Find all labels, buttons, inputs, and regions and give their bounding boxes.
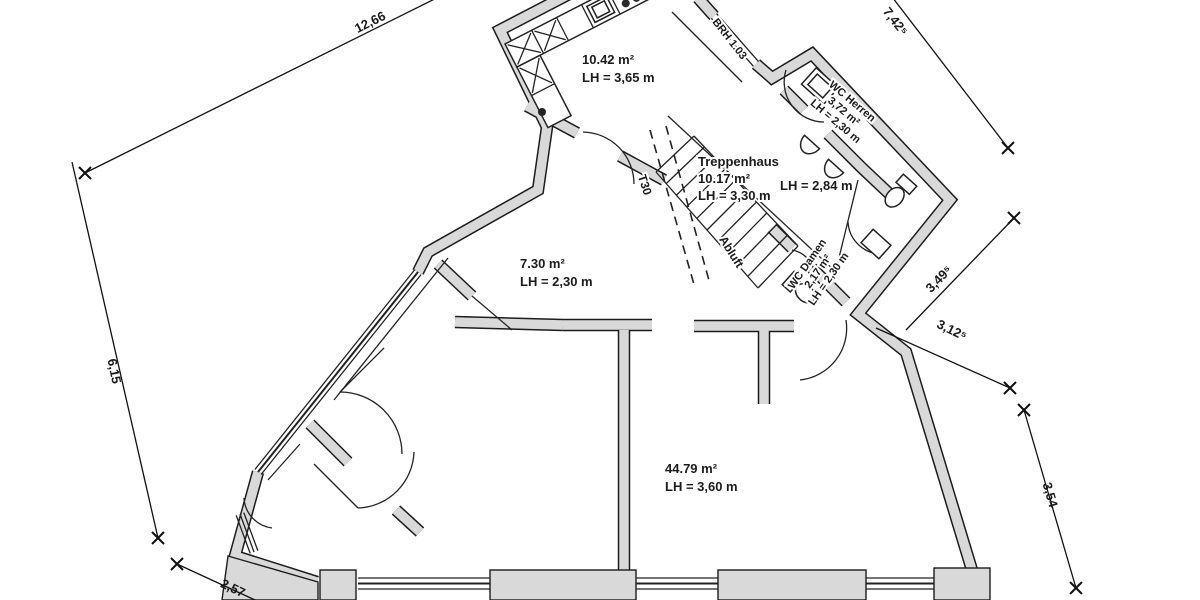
floor-plan-page: 12,66 6,15 2,57 7,42⁵ 3,49⁵ 3,12⁵ 3,54 1… [0, 0, 1200, 600]
exterior-and-interior-walls [235, 0, 978, 590]
wall-outline-layer [235, 0, 978, 590]
svg-text:10.42 m²: 10.42 m² [582, 52, 635, 67]
double-door-west-wing [314, 348, 414, 508]
svg-text:LH = 3,65 m: LH = 3,65 m [582, 70, 655, 85]
dimension-lines [72, 0, 1082, 600]
dim-label-right-mid: 3,12⁵ [935, 316, 970, 343]
pillar-4-corner [934, 568, 990, 600]
svg-text:LH = 3,60 m: LH = 3,60 m [665, 479, 738, 494]
room-label-small-room: 7.30 m² LH = 2,30 m [520, 256, 593, 289]
floor-plan-canvas: 12,66 6,15 2,57 7,42⁵ 3,49⁵ 3,12⁵ 3,54 1… [0, 0, 1200, 600]
dim-line-right-mid [876, 328, 1010, 388]
room-labels: 10.42 m² LH = 3,65 m Treppenhaus 10.17 m… [520, 52, 879, 494]
svg-text:Treppenhaus: Treppenhaus [698, 154, 779, 169]
dim-label-top-right: 7,42⁵ [880, 4, 911, 38]
svg-text:44.79 m²: 44.79 m² [665, 461, 718, 476]
dim-label-right-upper: 3,49⁵ [922, 262, 955, 295]
room-label-kitchen: 10.42 m² LH = 3,65 m [582, 52, 655, 85]
svg-text:7.30 m²: 7.30 m² [520, 256, 565, 271]
staircase [650, 126, 798, 288]
svg-text:10.17 m²: 10.17 m² [698, 171, 751, 186]
door-arc-main-room [800, 320, 847, 380]
window-bottom-3 [866, 578, 934, 589]
dim-label-right-lower: 3,54 [1040, 481, 1062, 510]
dim-line-left [72, 162, 158, 538]
lobby-basin [861, 229, 891, 258]
svg-text:LH = 3,30 m: LH = 3,30 m [698, 188, 771, 203]
wing-inner-wall-2 [268, 444, 300, 480]
kitchen-floor-drain [538, 108, 546, 116]
room-label-main-room: 44.79 m² LH = 3,60 m [665, 461, 738, 494]
pillar-2 [490, 570, 636, 600]
svg-text:LH = 2,30 m: LH = 2,30 m [520, 274, 593, 289]
room-label-hall-height: LH = 2,84 m [780, 178, 853, 193]
dimension-end-ticks [79, 142, 1082, 594]
annotation-labels: BRH 1.03 T30 Abluft [635, 16, 749, 270]
pillar-3 [718, 570, 866, 600]
wing-inner-wall-1 [334, 258, 448, 400]
room-label-treppenhaus: Treppenhaus 10.17 m² LH = 3,30 m [698, 154, 779, 203]
window-bottom-2 [636, 578, 718, 589]
urinal-1 [796, 135, 820, 158]
dim-label-left: 6,15 [105, 357, 125, 385]
window-bottom-1 [358, 578, 490, 589]
dim-line-top-left [85, 0, 523, 173]
pillar-1 [320, 570, 356, 600]
